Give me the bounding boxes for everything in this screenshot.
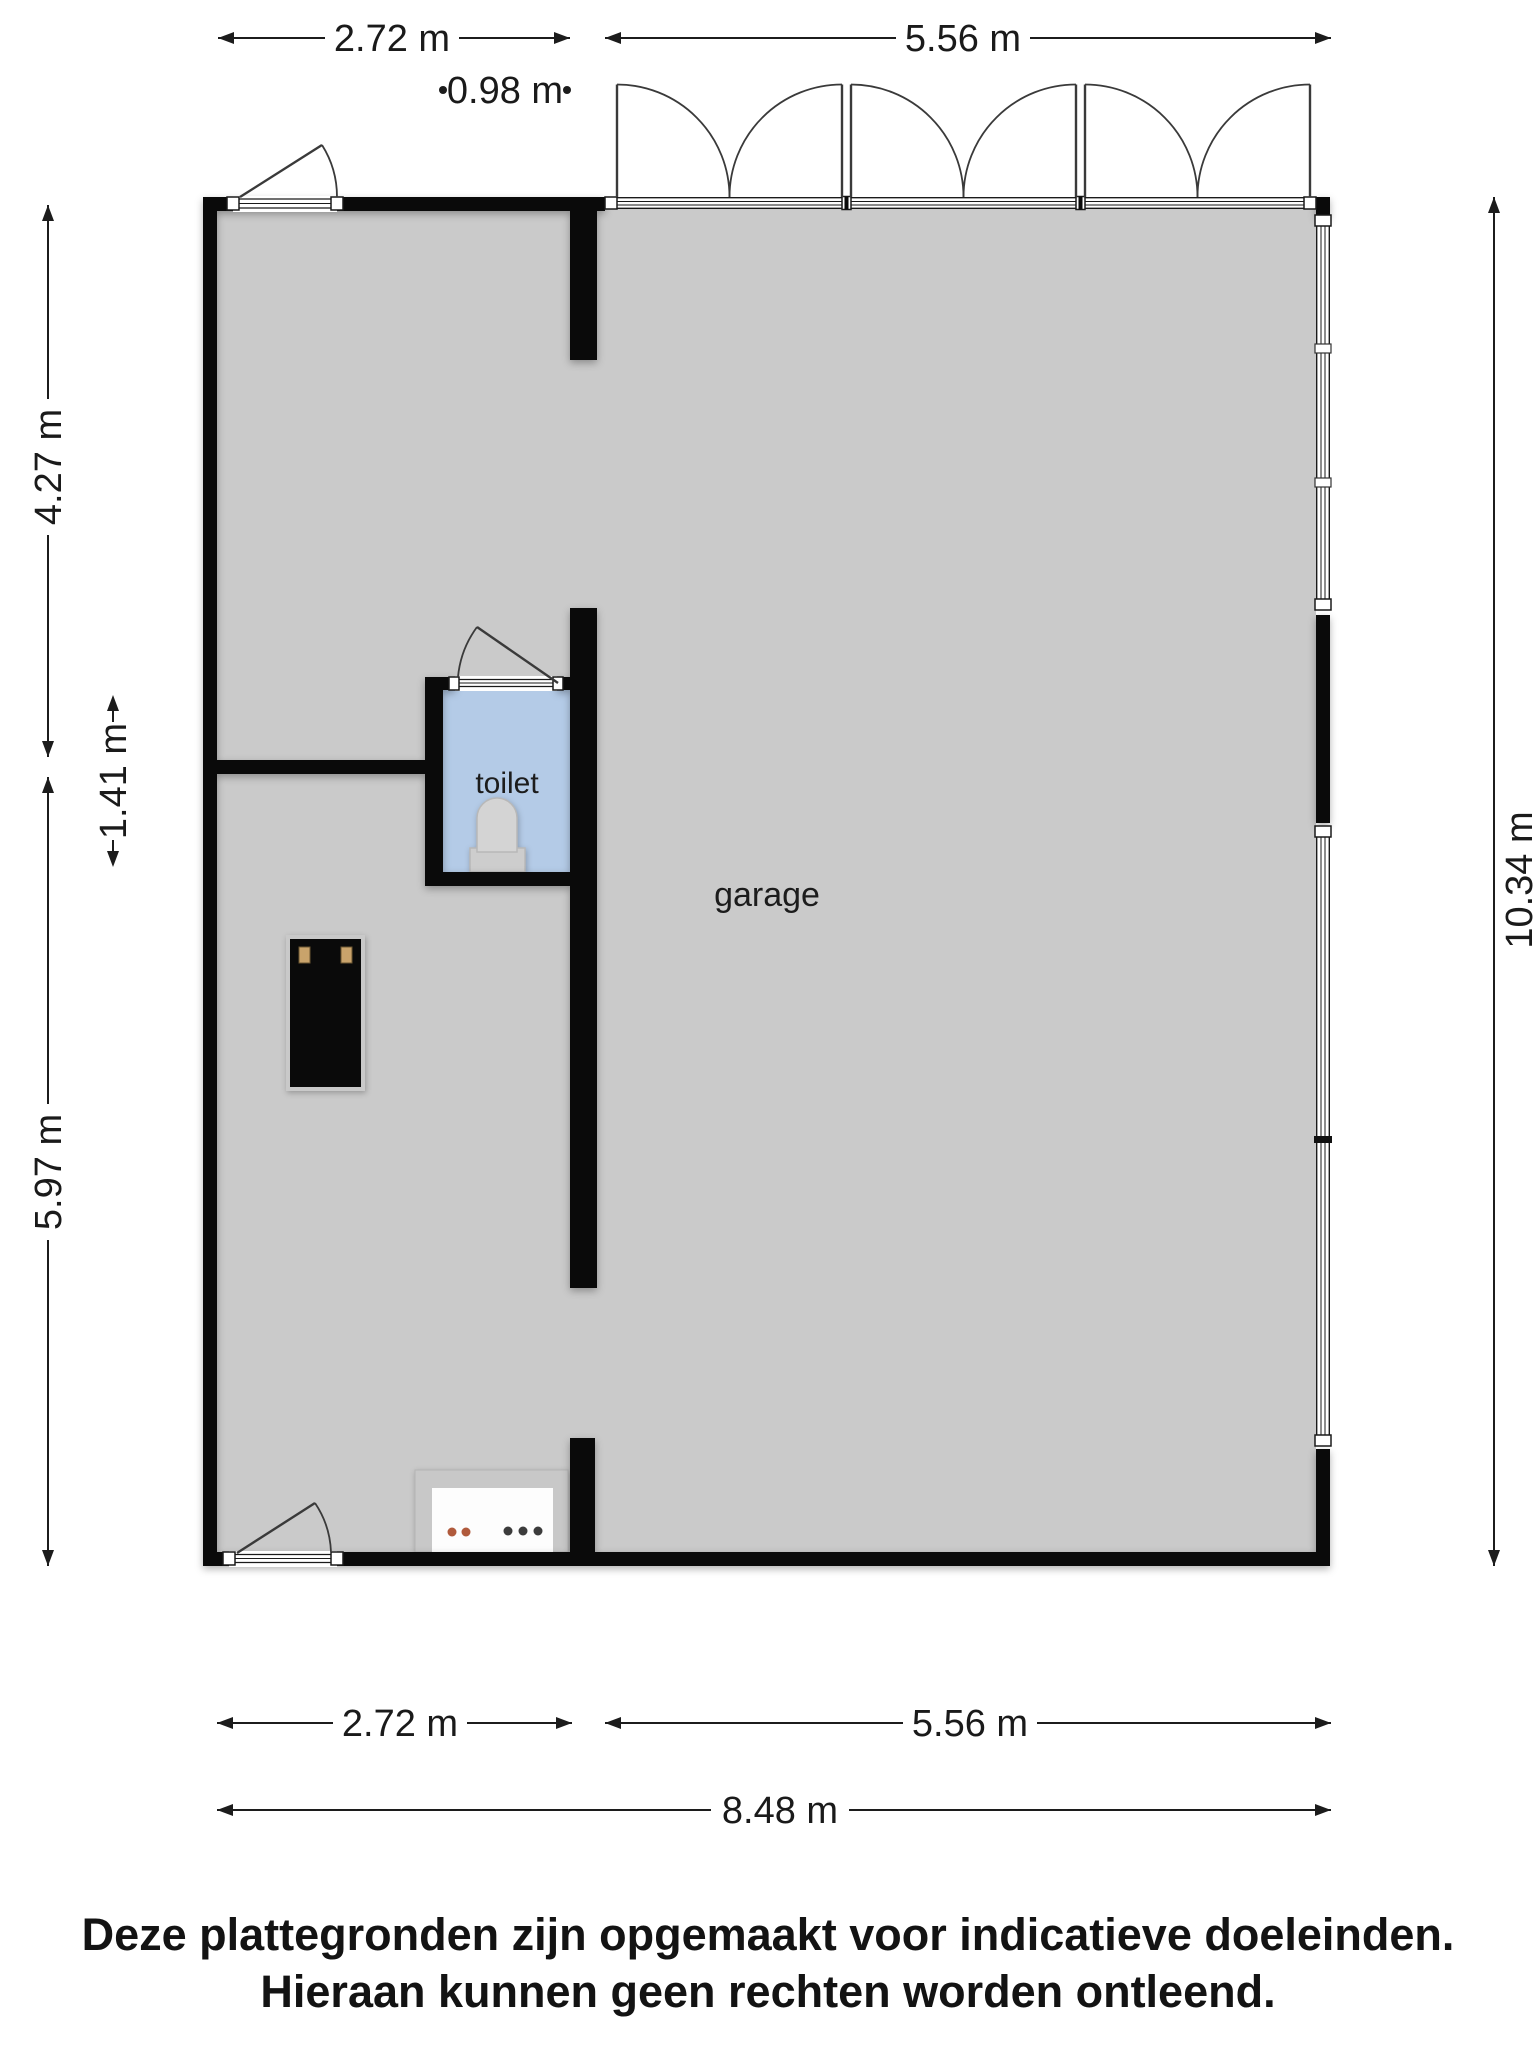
door-jamb xyxy=(223,1552,235,1565)
cabinet xyxy=(286,935,365,1091)
arrow-left-icon xyxy=(217,1804,233,1816)
dim-right-full-group: 10.34 m xyxy=(1499,811,1536,948)
counter-unit xyxy=(415,1470,568,1552)
glazed-band xyxy=(605,197,1316,209)
disclaimer-line-1: Deze plattegronden zijn opgemaakt voor i… xyxy=(0,1906,1536,1963)
window-jamb xyxy=(1315,599,1331,610)
door-jamb xyxy=(331,1552,343,1565)
garage-label: garage xyxy=(714,876,820,914)
glazed-mullion-1-post xyxy=(845,197,849,210)
dim-top-left: 2.72 m xyxy=(334,18,450,60)
glazed-jamb-left xyxy=(605,197,617,209)
glazed-jamb-right xyxy=(1304,197,1316,209)
knob-dark-2 xyxy=(519,1527,528,1536)
top-glazed-doors xyxy=(605,85,1316,210)
arrow-right-icon xyxy=(1315,32,1331,44)
arrow-left-icon xyxy=(218,32,234,44)
door-jamb xyxy=(227,197,239,210)
wall-mid-left xyxy=(217,760,425,774)
dim-left-lower: 5.97 m xyxy=(28,1114,70,1230)
toilet-label: toilet xyxy=(475,767,539,800)
door-jamb xyxy=(449,677,459,690)
arrow-up-icon xyxy=(1488,197,1500,213)
door-jamb xyxy=(553,677,563,690)
arrow-left-icon xyxy=(217,1717,233,1729)
arrow-down-icon xyxy=(1488,1550,1500,1566)
wall-left xyxy=(203,197,217,1566)
door-swing-arc xyxy=(617,85,730,198)
dim-left-upper-group: 4.27 m xyxy=(25,399,71,535)
arrow-down-icon xyxy=(42,741,54,757)
window-divider xyxy=(1314,1136,1332,1143)
wall-right-post-top xyxy=(1316,197,1330,217)
arrow-right-icon xyxy=(554,32,570,44)
arrow-up-icon xyxy=(107,695,119,711)
arrow-right-icon xyxy=(1315,1804,1331,1816)
toilet-bowl xyxy=(477,798,517,852)
floor-plan-page: toilet garage 2.72 m 5.56 m 0.98 m 4.27 … xyxy=(0,0,1536,2048)
dim-left-lower-group: 5.97 m xyxy=(25,1104,71,1240)
door-jamb xyxy=(331,197,343,210)
disclaimer: Deze plattegronden zijn opgemaakt voor i… xyxy=(0,1906,1536,2020)
dim-right-full: 10.34 m xyxy=(1499,811,1536,948)
dim-bottom-left: 2.72 m xyxy=(342,1703,458,1745)
counter-top xyxy=(432,1488,553,1552)
knob-dark-3 xyxy=(534,1527,543,1536)
window-jamb xyxy=(1315,826,1331,837)
wall-middle-vertical xyxy=(570,608,597,1288)
dim-left-toilet: 1.41 m xyxy=(93,723,135,839)
dim-dot xyxy=(439,86,447,94)
knob-dark-1 xyxy=(504,1527,513,1536)
dim-bottom-total: 8.48 m xyxy=(722,1790,838,1832)
right-windows xyxy=(1314,215,1332,1446)
dim-left-toilet-group: 1.41 m xyxy=(93,723,135,839)
window-jamb xyxy=(1315,1435,1331,1446)
arrow-down-icon xyxy=(42,1550,54,1566)
knob-orange-1 xyxy=(448,1528,457,1537)
door-swing-arc xyxy=(1085,85,1198,198)
window-sill-break xyxy=(1315,478,1331,487)
knob-orange-2 xyxy=(462,1528,471,1537)
window-jamb xyxy=(1315,215,1331,226)
door-swing-arc xyxy=(322,145,337,197)
arrow-left-icon xyxy=(605,32,621,44)
wall-bottom xyxy=(203,1552,1330,1566)
arrow-left-icon xyxy=(605,1717,621,1729)
door-swing-arc xyxy=(851,85,964,198)
dim-top-door: 0.98 m xyxy=(447,70,563,112)
arrow-right-icon xyxy=(1315,1717,1331,1729)
floor-plan: toilet garage 2.72 m 5.56 m 0.98 m 4.27 … xyxy=(0,0,1536,2048)
dim-dot xyxy=(563,86,571,94)
cabinet-handle-left xyxy=(299,947,310,963)
door-swing-arc xyxy=(964,85,1077,198)
window-sill-break xyxy=(1315,344,1331,353)
top-left-door xyxy=(227,145,343,212)
door-swing-arc xyxy=(730,85,843,198)
arrow-up-icon xyxy=(42,205,54,221)
dim-bottom-right: 5.56 m xyxy=(912,1703,1028,1745)
arrow-down-icon xyxy=(107,851,119,867)
glazed-mullion-2-post xyxy=(1079,197,1083,210)
wall-right-solid-mid xyxy=(1316,615,1330,823)
cabinet-handle-right xyxy=(341,947,352,963)
door-leaf xyxy=(240,145,322,197)
arrow-right-icon xyxy=(556,1717,572,1729)
arrow-up-icon xyxy=(42,777,54,793)
wall-stub-bottom xyxy=(570,1438,595,1566)
door-swing-arc xyxy=(1198,85,1311,198)
window-band-upper xyxy=(1316,215,1330,610)
dim-left-upper: 4.27 m xyxy=(28,409,70,525)
wall-right-solid-bottom xyxy=(1316,1449,1330,1566)
wall-stub-top xyxy=(570,208,597,360)
wall-toilet-left xyxy=(425,677,443,886)
dim-top-right: 5.56 m xyxy=(905,18,1021,60)
disclaimer-line-2: Hieraan kunnen geen rechten worden ontle… xyxy=(0,1963,1536,2020)
